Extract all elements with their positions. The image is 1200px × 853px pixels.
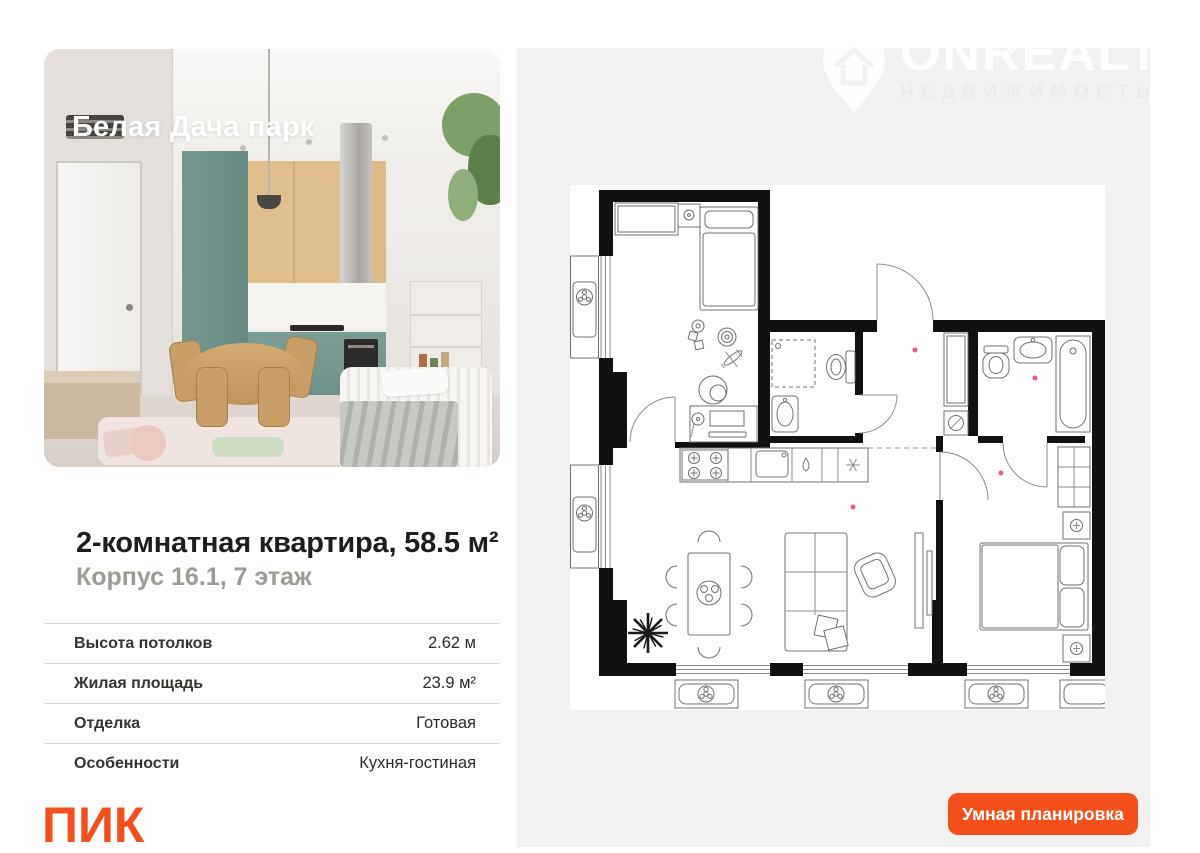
double-bed-icon: [980, 543, 1088, 630]
hall-wardrobe-icon: [944, 333, 968, 406]
listing-title: 2-комнатная квартира, 58.5 м²: [76, 527, 498, 560]
kids-wardrobe-icon: [615, 203, 678, 235]
nightstand-icon: [1063, 512, 1090, 539]
watermark-brand: ONREALT: [900, 26, 1161, 81]
toy-plane-icon: [717, 344, 747, 373]
watermark-tagline: НЕДВИЖИМОСТЬ: [900, 82, 1161, 104]
pik-developer-logo[interactable]: ПИК: [42, 800, 144, 850]
bathtub-icon: [1056, 336, 1090, 432]
spec-row: Высота потолков 2.62 м: [44, 623, 500, 663]
floorplan-svg: [570, 185, 1105, 710]
apartment-photo-card[interactable]: Белая Дача парк: [44, 49, 500, 467]
spec-row: Отделка Готовая: [44, 703, 500, 743]
sofa-icon: [785, 533, 848, 651]
bedroom-wardrobe-icon: [1058, 447, 1090, 507]
spec-value: Кухня-гостиная: [359, 754, 476, 773]
pillow: [381, 367, 449, 398]
armchair-icon: [851, 550, 898, 600]
nightstand-lamp-icon: [678, 204, 700, 227]
toilet-icon: [827, 351, 856, 383]
toys-rug-icon: [688, 320, 736, 350]
rug-shape: [212, 437, 284, 457]
spec-value: 2.62 м: [428, 634, 476, 653]
gray-throw-blanket: [340, 401, 458, 467]
spec-value: 23.9 м²: [422, 674, 476, 693]
dining-chair: [258, 367, 290, 427]
desk-chair-icon: [699, 376, 727, 404]
balcony: [571, 256, 599, 568]
spec-label: Особенности: [74, 755, 179, 773]
rug-shape: [130, 425, 166, 461]
door-handle: [126, 304, 133, 311]
backsplash: [248, 283, 386, 329]
onrealt-pin-icon: [818, 26, 890, 116]
floorplan-image[interactable]: [570, 185, 1105, 710]
washbasin-icon: [772, 396, 798, 432]
smart-layout-button[interactable]: Умная планировка: [948, 793, 1138, 835]
cooktop: [290, 325, 344, 331]
range-hood: [340, 123, 372, 285]
hanging-plant: [448, 169, 478, 221]
spec-label: Высота потолков: [74, 635, 212, 653]
single-bed-icon: [700, 207, 758, 310]
tv-console-icon: [915, 533, 932, 628]
dining-chair: [196, 367, 228, 427]
plant-icon: [628, 613, 668, 653]
listing-subtitle: Корпус 16.1, 7 этаж: [76, 563, 312, 592]
toilet-icon: [983, 346, 1009, 378]
spec-value: Готовая: [416, 714, 476, 733]
dining-table-icon: [688, 553, 730, 635]
sink-icon: [1014, 337, 1052, 363]
utility-shaft-icon: [944, 411, 968, 435]
spec-row: Жилая площадь 23.9 м²: [44, 663, 500, 703]
spec-label: Отделка: [74, 715, 140, 733]
floorplan-panel: ONREALT НЕДВИЖИМОСТЬ: [517, 48, 1150, 847]
ceiling-spot: [382, 135, 388, 141]
spec-table: Высота потолков 2.62 м Жилая площадь 23.…: [44, 623, 500, 783]
nightstand-icon: [1063, 635, 1090, 662]
project-name-overlay: Белая Дача парк: [72, 111, 314, 144]
ac-unit: [675, 680, 1105, 708]
desk-icon: [690, 406, 757, 442]
shower-icon: [772, 340, 815, 387]
spec-label: Жилая площадь: [74, 675, 203, 693]
spec-row: Особенности Кухня-гостиная: [44, 743, 500, 783]
onrealt-watermark: ONREALT НЕДВИЖИМОСТЬ: [818, 26, 1161, 116]
